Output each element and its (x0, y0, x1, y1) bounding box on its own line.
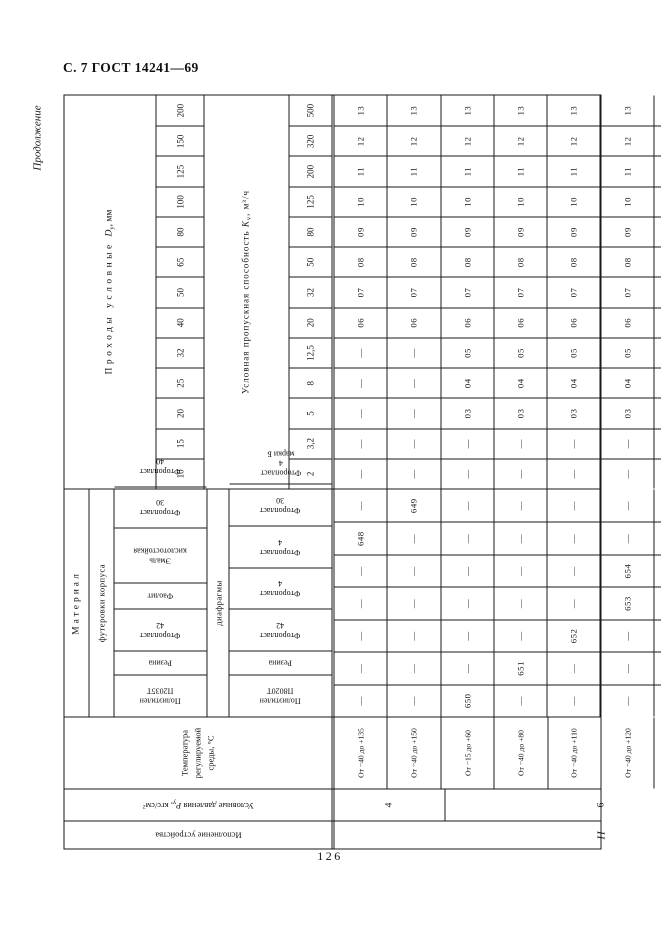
material-code-cell: — (654, 652, 661, 684)
passage-value-cell: 15 (157, 428, 204, 458)
material-group-label: Материал (65, 490, 90, 717)
passage-value-cell: 125 (157, 156, 204, 186)
diaphragm-name-row: Полиэтилен П8020ТРезинаФторопласт 42Фтор… (230, 490, 332, 717)
lining-name-text: Резина (149, 658, 172, 668)
capacity-code-cell: 06 (548, 307, 601, 337)
capacity-code-cell: — (441, 428, 494, 458)
passage-value-cell: 65 (157, 247, 204, 277)
lining-name-text: Полиэтилен П2035Т (140, 686, 181, 705)
capacity-code-cell: — (601, 458, 654, 488)
capacity-value-cell: 12,5 (290, 337, 332, 367)
capacity-code-cell: 11 (494, 156, 547, 186)
capacity-code-cell: 08 (654, 247, 661, 277)
capacity-code-cell: 11 (548, 156, 601, 186)
capacity-code-cell: 06 (654, 307, 661, 337)
passage-value-row: 101520253240506580100125150200 (157, 96, 205, 489)
material-code-cell: — (441, 490, 494, 522)
capacity-value-cell: 80 (290, 216, 332, 246)
lining-name-row: Полиэтилен П2035ТРезинаФторопласт 42Фаол… (115, 490, 208, 717)
column-group-material: Материал футеровки корпуса Полиэтилен П2… (65, 489, 601, 717)
passage-value-cell: 80 (157, 216, 204, 246)
capacity-code-cell: 10 (335, 186, 388, 216)
capacity-code-grid: —————0607080910111213—————06070809101112… (332, 96, 661, 489)
temperature-header-cell: Температура регулируемой среды, °С (65, 718, 332, 789)
diaphragm-name-text: Фторопласт 30 (260, 496, 301, 515)
rotated-table-container: Исполнение устройства II Условные давлен… (64, 95, 602, 850)
material-code-cell: — (388, 652, 441, 684)
passage-value-cell: 100 (157, 186, 204, 216)
material-code-cell: 648 (335, 522, 388, 554)
material-code-cell: 653 (601, 587, 654, 619)
capacity-code-cell: 13 (441, 96, 494, 126)
capacity-code-cell: 03 (441, 398, 494, 428)
capacity-code-cell: 05 (441, 337, 494, 367)
capacity-label: Условная пропускная способность Kv, м³/ч (205, 96, 290, 489)
temperature-cell: От −15 до +60 (441, 718, 494, 789)
material-code-grid: —————648———————649650———————651———————65… (332, 490, 661, 717)
diaphragm-name-text: Полиэтилен П8020Т (260, 686, 301, 705)
diaphragm-name-cell: Полиэтилен П8020Т (230, 675, 332, 717)
capacity-code-cell: — (388, 428, 441, 458)
capacity-code-cell: 04 (548, 368, 601, 398)
capacity-code-cell: 06 (388, 307, 441, 337)
capacity-code-cell: — (654, 458, 661, 488)
capacity-code-cell: 07 (601, 277, 654, 307)
lining-name-text: Фаолит (148, 591, 174, 601)
capacity-code-cell: 13 (601, 96, 654, 126)
passage-label: Проходы условные Dу, мм (65, 96, 157, 489)
capacity-code-cell: 13 (388, 96, 441, 126)
material-code-cell: — (441, 587, 494, 619)
diaphragm-name-cell: Фторопласт 4 (230, 525, 332, 567)
material-code-cell: — (494, 684, 547, 716)
diaphragm-name-cell: Фторопласт 42 (230, 609, 332, 651)
capacity-code-cell: — (335, 368, 388, 398)
capacity-code-cell: — (494, 428, 547, 458)
capacity-code-cell: 12 (494, 126, 547, 156)
material-code-cell: — (494, 522, 547, 554)
capacity-code-cell: 11 (654, 156, 661, 186)
capacity-code-cell: — (601, 428, 654, 458)
capacity-code-cell: 13 (654, 96, 661, 126)
column-execution: Исполнение устройства II (65, 821, 601, 849)
page-number: 126 (300, 849, 360, 864)
pressure-cell: 6 (446, 790, 661, 821)
material-code-cell: — (548, 684, 601, 716)
capacity-code-cell: 04 (601, 368, 654, 398)
capacity-code-cell: 07 (441, 277, 494, 307)
lining-name-cell: Резина (115, 650, 207, 674)
capacity-code-cell: 03 (494, 398, 547, 428)
capacity-value-cell: 125 (290, 186, 332, 216)
material-code-cell: — (654, 684, 661, 716)
capacity-code-cell: 10 (494, 186, 547, 216)
material-code-cell: — (335, 652, 388, 684)
material-code-cell: — (548, 652, 601, 684)
capacity-code-cell: 08 (548, 247, 601, 277)
material-code-cell: 654 (601, 554, 654, 586)
lining-name-text: Эмаль кислотостойкая (134, 546, 187, 565)
capacity-code-cell: 04 (441, 368, 494, 398)
material-code-cell: — (654, 587, 661, 619)
capacity-code-cell: 03 (654, 398, 661, 428)
material-code-cell: — (388, 554, 441, 586)
capacity-code-cell: 07 (494, 277, 547, 307)
material-code-cell: — (441, 619, 494, 651)
material-code-cell: — (335, 490, 388, 522)
capacity-code-cell: 08 (494, 247, 547, 277)
lining-name-cell: Фаолит (115, 582, 207, 609)
capacity-code-cell: 07 (654, 277, 661, 307)
capacity-code-cell: 05 (601, 337, 654, 367)
capacity-code-cell: 12 (335, 126, 388, 156)
material-code-cell: 651 (494, 652, 547, 684)
material-code-cell: — (388, 619, 441, 651)
passage-value-cell: 40 (157, 307, 204, 337)
capacity-code-cell: 09 (494, 216, 547, 246)
capacity-value-cell: 20 (290, 307, 332, 337)
diaphragm-name-text: Резина (269, 658, 292, 668)
temperature-cell: От −40 до +120 (602, 718, 655, 789)
capacity-code-cell: 09 (388, 216, 441, 246)
page-title: С. 7 ГОСТ 14241—69 (63, 60, 199, 76)
capacity-code-cell: 08 (601, 247, 654, 277)
temperature-label: Температура регулируемой среды, °С (178, 728, 218, 778)
execution-value-cell: II (332, 822, 661, 849)
capacity-code-cell: 11 (441, 156, 494, 186)
diaphragm-name-text: Фторопласт 4 (260, 537, 301, 556)
lining-label: футеровки корпуса (90, 490, 115, 717)
pressure-values: 4610 (332, 790, 661, 821)
capacity-code-cell: 12 (654, 126, 661, 156)
pressure-label: Условные давления Ру, кгс/см² (143, 799, 254, 811)
capacity-code-cell: 10 (654, 186, 661, 216)
capacity-code-cell: 10 (441, 186, 494, 216)
material-code-cell: — (548, 554, 601, 586)
material-code-cell: — (601, 522, 654, 554)
capacity-code-cell: 11 (388, 156, 441, 186)
capacity-code-cell: — (335, 398, 388, 428)
capacity-code-cell: — (335, 458, 388, 488)
material-code-cell: 655 (654, 522, 661, 554)
capacity-code-cell: 10 (388, 186, 441, 216)
capacity-header: Проходы условные Dу, мм 1015202532405065… (65, 96, 332, 489)
column-temperature: Температура регулируемой среды, °С От −4… (65, 717, 601, 789)
lining-name-cell: Полиэтилен П2035Т (115, 675, 207, 717)
material-code-cell: — (494, 554, 547, 586)
capacity-code-cell: — (388, 458, 441, 488)
continuation-label: Продолжение (24, 88, 52, 188)
capacity-value-cell: 500 (290, 96, 332, 126)
passage-value-cell: 20 (157, 398, 204, 428)
column-group-capacity: Проходы условные Dу, мм 1015202532405065… (65, 96, 601, 489)
temperature-cell: От −40 до +135 (335, 718, 388, 789)
capacity-code-cell: 10 (601, 186, 654, 216)
material-header: Материал футеровки корпуса Полиэтилен П2… (65, 490, 332, 717)
lining-name-cell: Фторопласт 42 (115, 609, 207, 651)
capacity-code-cell: 08 (335, 247, 388, 277)
capacity-code-cell: — (494, 458, 547, 488)
diaphragm-label: диафрагмы (208, 490, 230, 717)
material-code-cell: — (388, 587, 441, 619)
material-code-cell: — (335, 684, 388, 716)
capacity-code-cell: 12 (441, 126, 494, 156)
material-code-cell: — (548, 490, 601, 522)
material-code-cell: — (388, 684, 441, 716)
diaphragm-name-cell: Фторопласт 30 (230, 484, 332, 526)
passage-value-cell: 200 (157, 96, 204, 126)
capacity-value-row: 23,25812,520325080125200320500 (290, 96, 332, 489)
material-code-cell: — (601, 652, 654, 684)
document-page: С. 7 ГОСТ 14241—69 Продолжение Исполнени… (0, 0, 661, 936)
capacity-code-cell: 11 (335, 156, 388, 186)
lining-name-text: Фторопласт 40 (140, 456, 181, 475)
pressure-cell: 4 (335, 790, 446, 821)
capacity-code-cell: 11 (601, 156, 654, 186)
capacity-code-cell: 07 (388, 277, 441, 307)
capacity-code-cell: 09 (335, 216, 388, 246)
diaphragm-name-text: Фторопласт 4 (260, 579, 301, 598)
material-code-cell: — (494, 587, 547, 619)
material-code-cell: 649 (388, 490, 441, 522)
temperature-cell: От −40 до +80 (495, 718, 548, 789)
capacity-code-cell: 06 (494, 307, 547, 337)
material-code-cell: — (335, 554, 388, 586)
capacity-code-cell: — (335, 428, 388, 458)
pressure-header-cell: Условные давления Ру, кгс/см² (65, 790, 332, 821)
capacity-code-cell: 09 (654, 216, 661, 246)
material-code-cell: — (494, 490, 547, 522)
capacity-code-cell: 13 (548, 96, 601, 126)
material-code-cell: — (548, 587, 601, 619)
capacity-code-cell: 13 (335, 96, 388, 126)
capacity-code-cell: — (548, 428, 601, 458)
lining-name-text: Фторопласт 30 (140, 498, 181, 517)
capacity-code-cell: — (388, 368, 441, 398)
capacity-code-cell: — (388, 398, 441, 428)
capacity-code-cell: 09 (441, 216, 494, 246)
capacity-code-cell: 06 (441, 307, 494, 337)
gost-table: Исполнение устройства II Условные давлен… (64, 95, 602, 850)
material-code-cell: — (441, 652, 494, 684)
diaphragm-name-cell: Фторопласт 4 (230, 567, 332, 609)
capacity-code-cell: — (388, 337, 441, 367)
capacity-code-cell: 04 (654, 368, 661, 398)
capacity-code-cell: 12 (388, 126, 441, 156)
capacity-value-cell: 8 (290, 368, 332, 398)
temperature-cell: От −40 до +150 (388, 718, 441, 789)
capacity-code-cell: — (654, 428, 661, 458)
passage-value-cell: 150 (157, 126, 204, 156)
temperature-cell: От −40 до +110 (548, 718, 601, 789)
material-code-cell: — (601, 684, 654, 716)
capacity-value-cell: 320 (290, 126, 332, 156)
diaphragm-name-text: Фторопласт 42 (260, 620, 301, 639)
column-pressure: Условные давления Ру, кгс/см² 4610 (65, 789, 601, 821)
lining-name-cell: Эмаль кислотостойкая (115, 528, 207, 582)
passage-value-cell: 25 (157, 368, 204, 398)
capacity-code-cell: 08 (441, 247, 494, 277)
material-code-cell: 650 (441, 684, 494, 716)
capacity-code-cell: 12 (548, 126, 601, 156)
capacity-value-cell: 50 (290, 247, 332, 277)
capacity-code-cell: 05 (654, 337, 661, 367)
capacity-code-cell: 05 (494, 337, 547, 367)
capacity-code-cell: 09 (601, 216, 654, 246)
capacity-code-cell: 12 (601, 126, 654, 156)
execution-label: Исполнение устройства (155, 830, 241, 840)
capacity-code-cell: 03 (601, 398, 654, 428)
execution-header-cell: Исполнение устройства (65, 822, 332, 849)
lining-name-text: Фторопласт 42 (140, 620, 181, 639)
capacity-code-cell: 04 (494, 368, 547, 398)
capacity-code-cell: — (441, 458, 494, 488)
material-code-cell: — (601, 619, 654, 651)
capacity-code-cell: 09 (548, 216, 601, 246)
diaphragm-name-cell: Резина (230, 650, 332, 674)
capacity-code-cell: 03 (548, 398, 601, 428)
capacity-value-cell: 200 (290, 156, 332, 186)
capacity-code-cell: — (335, 337, 388, 367)
material-code-cell: — (441, 554, 494, 586)
temperature-values: От −40 до +135От −40 до +150От −15 до +6… (332, 718, 661, 789)
capacity-code-cell: 07 (335, 277, 388, 307)
material-code-cell: — (654, 619, 661, 651)
diaphragm-name-text: Фторопласт 4 марки Б (260, 449, 301, 478)
capacity-code-cell: 05 (548, 337, 601, 367)
material-code-cell: — (654, 554, 661, 586)
capacity-code-cell: 13 (494, 96, 547, 126)
material-code-cell: — (335, 587, 388, 619)
capacity-value-cell: 5 (290, 398, 332, 428)
material-code-cell: — (548, 522, 601, 554)
passage-value-cell: 50 (157, 277, 204, 307)
capacity-value-cell: 32 (290, 277, 332, 307)
capacity-code-cell: 07 (548, 277, 601, 307)
temperature-cell: От −40 до +135 (655, 718, 661, 789)
material-code-cell: — (494, 619, 547, 651)
material-code-cell: — (388, 522, 441, 554)
material-code-cell: — (601, 490, 654, 522)
material-code-cell: — (441, 522, 494, 554)
passage-value-cell: 32 (157, 337, 204, 367)
capacity-code-cell: 06 (601, 307, 654, 337)
material-code-cell: — (335, 619, 388, 651)
material-code-cell: — (654, 490, 661, 522)
capacity-code-cell: — (548, 458, 601, 488)
lining-name-cell: Фторопласт 30 (115, 486, 207, 528)
capacity-code-cell: 06 (335, 307, 388, 337)
material-code-cell: 652 (548, 619, 601, 651)
capacity-code-cell: 10 (548, 186, 601, 216)
capacity-code-cell: 08 (388, 247, 441, 277)
